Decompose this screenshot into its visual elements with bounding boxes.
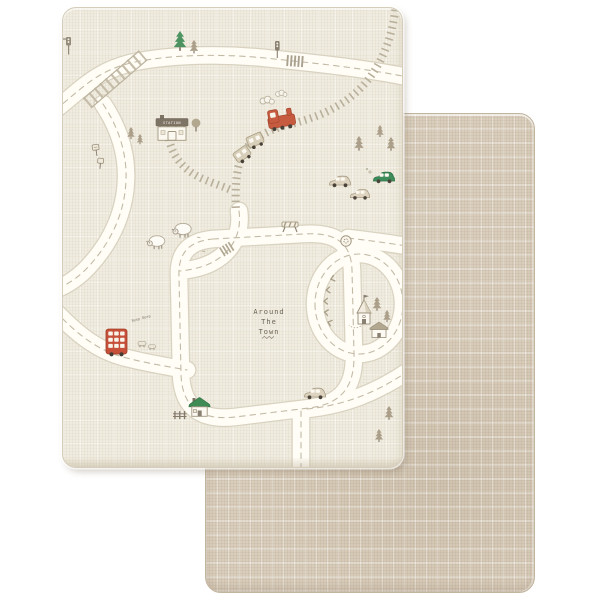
double-decker-bus-icon	[106, 329, 127, 356]
car-doodle-icon	[138, 342, 146, 347]
beige-car-icon	[350, 190, 369, 200]
sheep-icon	[146, 236, 164, 250]
road-sign-icon	[97, 158, 104, 169]
steam-cloud-icon	[260, 96, 274, 104]
product-photo: STATION	[0, 0, 600, 600]
steam-cloud-icon	[276, 90, 287, 96]
traffic-light-icon	[63, 37, 71, 55]
steam-train-icon	[232, 90, 296, 165]
round-tree-icon	[192, 119, 201, 132]
roads-layer	[63, 55, 403, 468]
station-sign-text: STATION	[163, 121, 181, 125]
sheep-icon	[172, 223, 191, 237]
town-print-artwork: STATION	[63, 8, 403, 468]
title-lettering: Around The Town	[253, 308, 284, 339]
green-car-icon	[374, 172, 395, 183]
car-doodle-icon	[148, 345, 155, 350]
title-line-1: Around	[253, 308, 284, 316]
title-line-3: Town	[259, 328, 280, 336]
cottage-icon	[370, 322, 388, 338]
title-underline-squiggle	[262, 336, 274, 338]
title-line-2: The	[261, 318, 277, 326]
play-mat-front-town-side: STATION	[62, 7, 403, 468]
beige-car-icon	[330, 176, 351, 187]
roundabout-sign-icon	[341, 236, 351, 246]
train-wagon-icon	[245, 132, 265, 151]
road-sign-icon	[92, 144, 100, 156]
locomotive-icon	[266, 107, 296, 132]
station-icon: STATION	[156, 115, 188, 140]
fence-icon	[173, 411, 187, 419]
bus-caption-text: Beep Beep	[131, 314, 151, 323]
